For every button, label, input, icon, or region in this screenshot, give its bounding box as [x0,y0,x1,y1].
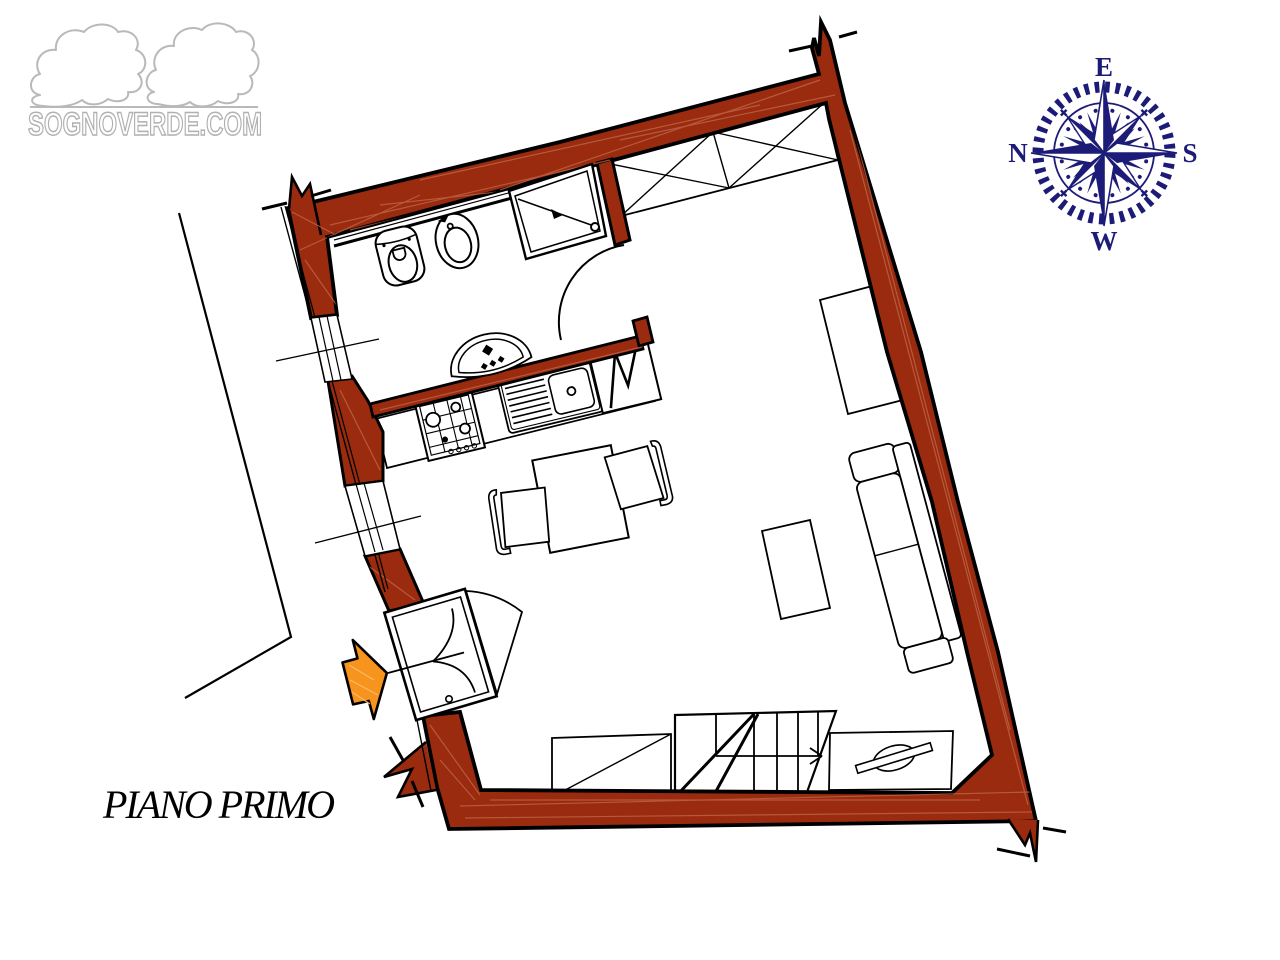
svg-text:PIANO PRIMO: PIANO PRIMO [102,782,335,827]
svg-text:S: S [1182,138,1197,168]
svg-text:W: W [1091,226,1118,256]
svg-text:E: E [1095,52,1113,82]
svg-text:N: N [1008,138,1028,168]
svg-text:SOGNOVERDE.COM: SOGNOVERDE.COM [28,106,262,142]
